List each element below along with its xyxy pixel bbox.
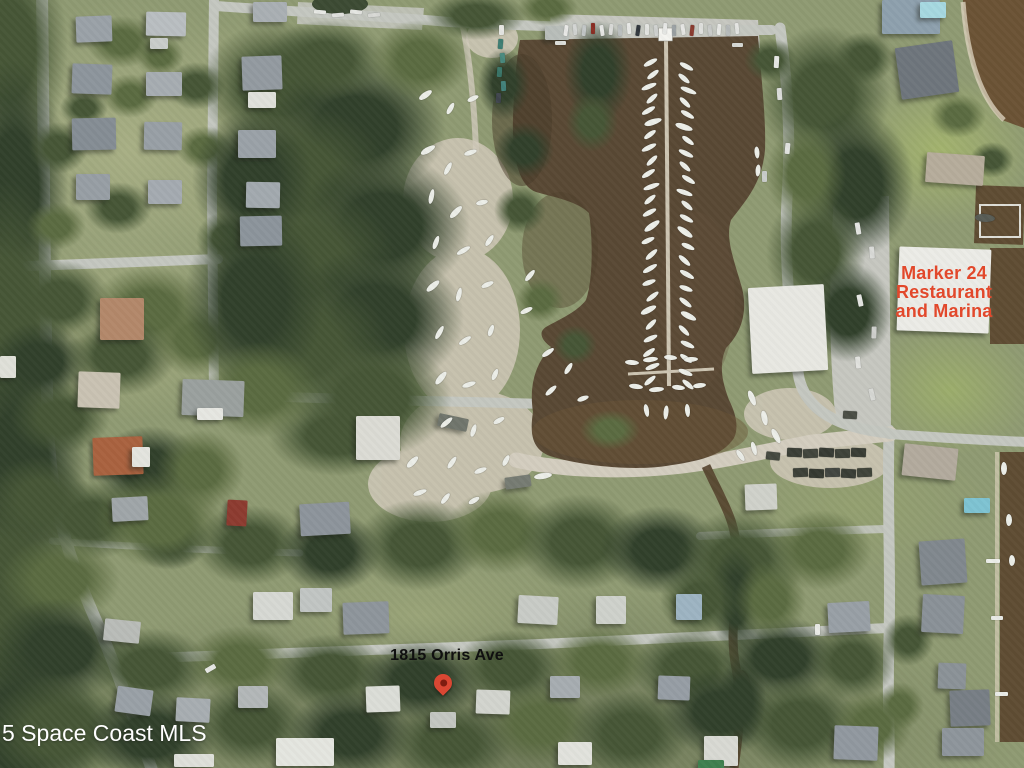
mls-watermark: 5 Space Coast MLS (2, 720, 207, 747)
marina-label-line3: and Marina (858, 302, 1024, 321)
address-label: 1815 Orris Ave (352, 647, 542, 665)
marina-label: Marker 24 Restaurant and Marina (858, 264, 1024, 321)
aerial-map-photo[interactable]: Marker 24 Restaurant and Marina 1815 Orr… (0, 0, 1024, 768)
marina-label-line1: Marker 24 (858, 264, 1024, 283)
marina-label-line2: Restaurant (858, 283, 1024, 302)
